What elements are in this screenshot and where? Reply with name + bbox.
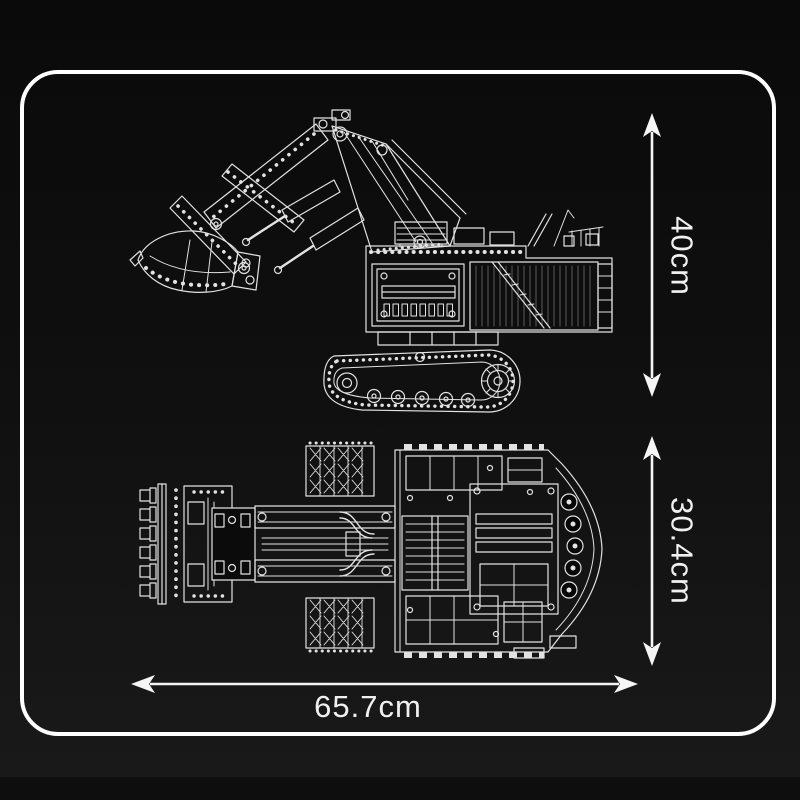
background-bottom-strip bbox=[0, 777, 800, 800]
height-dimension-arrow: 40cm bbox=[636, 106, 736, 406]
width-dimension-arrow: 30.4cm bbox=[636, 428, 736, 674]
excavator-top-view-drawing bbox=[110, 438, 610, 673]
width-dimension-label: 30.4cm bbox=[665, 497, 700, 605]
double-arrow-vertical-icon bbox=[643, 436, 661, 666]
excavator-side-view-drawing bbox=[120, 100, 620, 420]
height-dimension-label: 40cm bbox=[665, 216, 700, 296]
product-dimension-image: 40cm 30.4cm 65.7cm bbox=[0, 0, 800, 800]
length-dimension-label: 65.7cm bbox=[258, 689, 478, 725]
double-arrow-vertical-icon bbox=[643, 113, 661, 397]
